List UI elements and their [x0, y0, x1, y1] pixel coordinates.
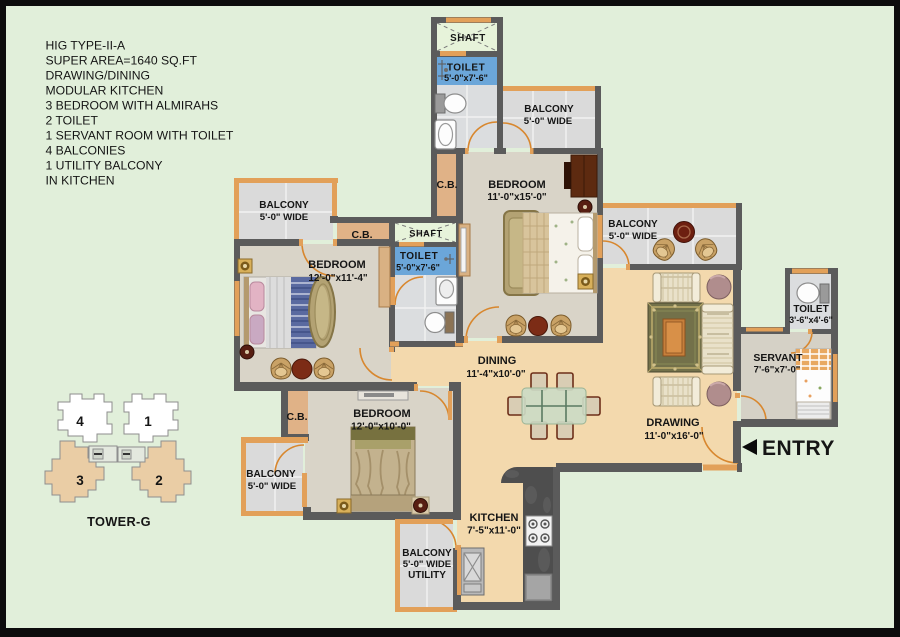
svg-text:5'-0" WIDE: 5'-0" WIDE: [524, 116, 573, 127]
svg-text:C.B.: C.B.: [437, 179, 458, 191]
svg-text:BALCONY: BALCONY: [402, 548, 452, 559]
svg-text:BALCONY: BALCONY: [524, 104, 574, 115]
svg-text:TOILET: TOILET: [793, 304, 828, 315]
svg-text:2 TOILET: 2 TOILET: [46, 114, 99, 128]
svg-text:SHAFT: SHAFT: [409, 229, 443, 239]
svg-text:11'-0"x15'-0": 11'-0"x15'-0": [487, 192, 547, 203]
svg-text:11'-4"x10'-0": 11'-4"x10'-0": [466, 369, 526, 380]
svg-text:5'-0" WIDE: 5'-0" WIDE: [248, 481, 297, 492]
svg-text:TOWER-G: TOWER-G: [87, 514, 151, 529]
svg-text:C.B.: C.B.: [287, 411, 308, 423]
svg-text:7'-6"x7'-0": 7'-6"x7'-0": [754, 365, 801, 376]
svg-text:BEDROOM: BEDROOM: [353, 408, 410, 420]
svg-text:SUPER AREA=1640 SQ.FT: SUPER AREA=1640 SQ.FT: [46, 54, 198, 68]
svg-text:11'-0"x16'-0": 11'-0"x16'-0": [644, 431, 704, 442]
svg-text:2: 2: [155, 473, 163, 488]
svg-text:3 BEDROOM WITH ALMIRAHS: 3 BEDROOM WITH ALMIRAHS: [46, 99, 219, 113]
svg-text:DRAWING: DRAWING: [646, 417, 699, 429]
svg-text:1: 1: [144, 414, 152, 429]
svg-text:12'-0"x11'-4": 12'-0"x11'-4": [308, 273, 368, 284]
svg-text:3: 3: [76, 473, 84, 488]
svg-text:1 UTILITY BALCONY: 1 UTILITY BALCONY: [46, 159, 163, 173]
svg-text:5'-0"x7'-6": 5'-0"x7'-6": [396, 263, 440, 273]
svg-text:MODULAR KITCHEN: MODULAR KITCHEN: [46, 84, 164, 98]
svg-text:TOILET: TOILET: [400, 251, 438, 262]
svg-text:4 BALCONIES: 4 BALCONIES: [46, 144, 126, 158]
svg-text:BEDROOM: BEDROOM: [488, 179, 545, 191]
svg-text:5'-0" WIDE: 5'-0" WIDE: [260, 212, 309, 223]
svg-text:5'-0" WIDE: 5'-0" WIDE: [403, 559, 452, 570]
svg-text:12'-0"x10'-0": 12'-0"x10'-0": [351, 422, 411, 433]
svg-text:HIG TYPE-II-A: HIG TYPE-II-A: [46, 39, 127, 53]
svg-text:5'-0" WIDE: 5'-0" WIDE: [609, 231, 658, 242]
svg-text:7'-5"x11'-0": 7'-5"x11'-0": [467, 526, 521, 537]
svg-text:SHAFT: SHAFT: [450, 33, 486, 44]
svg-text:BALCONY: BALCONY: [259, 200, 309, 211]
svg-text:4: 4: [76, 414, 84, 429]
svg-text:BEDROOM: BEDROOM: [308, 259, 365, 271]
svg-text:SERVANT: SERVANT: [753, 352, 803, 364]
svg-text:BALCONY: BALCONY: [246, 469, 296, 480]
svg-text:KITCHEN: KITCHEN: [470, 512, 519, 524]
svg-text:DRAWING/DINING: DRAWING/DINING: [46, 69, 151, 83]
svg-text:DINING: DINING: [478, 355, 517, 367]
svg-text:TOILET: TOILET: [447, 63, 485, 74]
svg-text:1 SERVANT ROOM WITH TOILET: 1 SERVANT ROOM WITH TOILET: [46, 129, 234, 143]
svg-text:ENTRY: ENTRY: [762, 437, 835, 460]
svg-text:5'-0"x7'-6": 5'-0"x7'-6": [444, 73, 488, 83]
svg-text:3'-6"x4'-6": 3'-6"x4'-6": [789, 315, 833, 325]
svg-text:C.B.: C.B.: [352, 229, 373, 241]
svg-text:BALCONY: BALCONY: [608, 219, 658, 230]
svg-text:UTILITY: UTILITY: [408, 570, 446, 581]
svg-text:IN KITCHEN: IN KITCHEN: [46, 174, 115, 188]
